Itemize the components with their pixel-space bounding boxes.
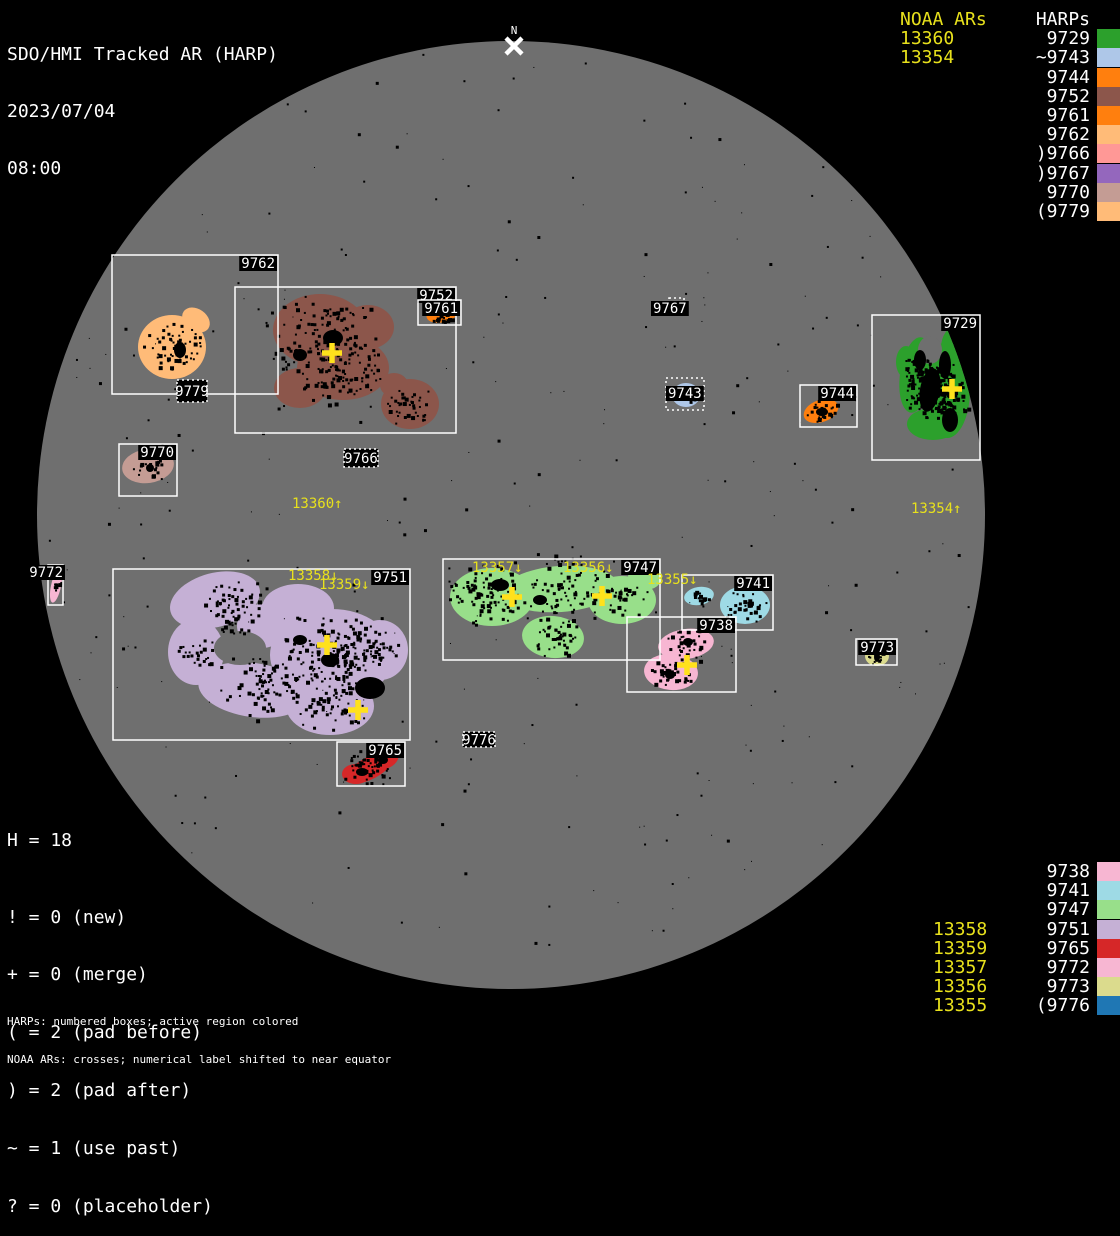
speckle (360, 388, 362, 390)
speckle (553, 592, 556, 595)
speckle (246, 606, 248, 608)
speckle (676, 671, 679, 674)
speckle (314, 167, 315, 168)
speckle (292, 317, 293, 318)
speckle (296, 617, 299, 620)
speckle (348, 354, 351, 357)
speckle (355, 619, 358, 622)
speckle (834, 412, 837, 415)
speckle (249, 714, 252, 717)
speckle (576, 775, 577, 776)
speckle (372, 349, 375, 352)
speckle (285, 366, 287, 368)
speckle (237, 608, 240, 611)
speckle (707, 272, 708, 273)
speckle (352, 643, 355, 646)
speckle (570, 604, 572, 606)
speckle (424, 529, 427, 532)
speckle (182, 646, 184, 648)
speckle (402, 721, 404, 723)
speckle (873, 385, 875, 387)
speckle (342, 319, 344, 321)
speckle (809, 736, 810, 737)
speckle (356, 390, 358, 392)
speckle (342, 370, 345, 373)
speckle (202, 214, 203, 215)
speckle (296, 694, 300, 698)
speckle (651, 669, 654, 672)
speckle (917, 377, 919, 379)
speckle (262, 673, 264, 675)
speckle (327, 344, 330, 347)
speckle (203, 648, 207, 652)
speckle (397, 415, 399, 417)
speckle (363, 763, 365, 765)
speckle (160, 362, 163, 365)
speckle (453, 590, 455, 592)
speckle (488, 582, 492, 586)
noaa-ar-disk-label: 13359↓ (319, 577, 370, 593)
speckle (427, 391, 429, 393)
speckle (362, 705, 364, 707)
speckle (195, 333, 197, 335)
speckle (531, 724, 533, 726)
speckle (721, 646, 722, 647)
speckle (228, 621, 231, 624)
speckle (407, 414, 411, 418)
speckle (694, 592, 698, 596)
speckle (359, 761, 363, 765)
speckle (336, 369, 338, 371)
speckle (592, 601, 596, 605)
speckle (235, 623, 237, 625)
speckle (916, 395, 918, 397)
flag-line: + = 0 (merge) (7, 965, 213, 984)
speckle (948, 409, 950, 411)
speckle (340, 695, 342, 697)
speckle (280, 348, 284, 352)
speckle (353, 314, 355, 316)
speckle (323, 618, 325, 620)
speckle (319, 697, 323, 701)
speckle (511, 580, 514, 583)
speckle (915, 368, 919, 372)
speckle (126, 437, 128, 439)
speckle (374, 765, 376, 767)
speckle (759, 615, 762, 618)
speckle (302, 373, 304, 375)
noaa-ar-number: 13357 (933, 957, 995, 978)
speckle (327, 313, 329, 315)
speckle (271, 312, 274, 315)
speckle (259, 677, 261, 679)
speckle (479, 615, 481, 617)
harp-number-label: 9770 (140, 445, 174, 461)
speckle (909, 359, 911, 361)
speckle (259, 594, 262, 597)
speckle (313, 710, 317, 714)
speckle (363, 699, 364, 700)
speckle (558, 631, 561, 634)
speckle (193, 358, 195, 360)
speckle (284, 618, 285, 619)
speckle (297, 350, 300, 353)
speckle (191, 329, 193, 331)
speckle (228, 604, 230, 606)
speckle (313, 668, 315, 670)
speckle (550, 392, 551, 393)
speckle (817, 411, 819, 413)
speckle (542, 589, 544, 591)
speckle (222, 594, 225, 597)
speckle (344, 343, 347, 346)
speckle (200, 345, 202, 347)
speckle (262, 682, 264, 684)
harp-number-label: 9762 (241, 256, 275, 272)
speckle (604, 409, 605, 410)
speckle (367, 759, 370, 762)
speckle (375, 379, 377, 381)
speckle (332, 664, 335, 667)
active-region-blob (173, 320, 195, 342)
speckle (529, 506, 530, 507)
speckle (230, 629, 234, 633)
speckle (361, 380, 363, 382)
speckle (149, 466, 153, 470)
harp-number: 9752 (1047, 86, 1090, 107)
speckle (244, 671, 248, 675)
speckle (363, 758, 366, 761)
speckle (466, 581, 469, 584)
speckle (353, 393, 355, 395)
speckle (378, 663, 381, 666)
speckle (448, 567, 450, 569)
speckle (464, 872, 467, 875)
speckle (368, 355, 371, 358)
noaa-ar-item: 13360 (900, 29, 987, 48)
speckle (956, 398, 960, 402)
speckle (425, 403, 428, 406)
speckle (574, 597, 576, 599)
speckle (301, 641, 303, 643)
speckle (354, 647, 356, 649)
speckle (514, 483, 516, 485)
speckle (191, 852, 192, 853)
speckle (678, 645, 681, 648)
speckle (326, 310, 329, 313)
speckle (219, 603, 221, 605)
speckle (285, 674, 289, 678)
speckle (326, 324, 329, 327)
speckle (743, 600, 747, 604)
speckle (124, 328, 127, 331)
speckle (927, 400, 930, 403)
speckle (337, 633, 339, 635)
speckle (334, 329, 336, 331)
speckle (940, 382, 942, 384)
speckle (814, 406, 817, 409)
speckle (403, 533, 406, 536)
speckle (232, 658, 235, 661)
speckle (173, 347, 176, 350)
speckle (953, 412, 956, 415)
harp-color-swatch (1097, 958, 1120, 977)
speckle (157, 338, 159, 340)
speckle (328, 698, 330, 700)
speckle (483, 586, 485, 588)
speckle (687, 630, 691, 634)
speckle (932, 380, 935, 383)
speckle (373, 373, 375, 375)
speckle (371, 766, 373, 768)
speckle (273, 358, 275, 360)
speckle (306, 378, 308, 380)
speckle (825, 611, 828, 614)
speckle (248, 621, 249, 622)
speckle (967, 408, 971, 412)
speckle (963, 409, 967, 413)
speckle (461, 600, 464, 603)
speckle (718, 138, 721, 141)
speckle (108, 523, 111, 526)
speckle (411, 416, 415, 420)
speckle (444, 321, 447, 324)
speckle (284, 299, 285, 300)
speckle (924, 402, 927, 405)
speckle (333, 694, 335, 696)
speckle (293, 649, 295, 651)
harp-number: ~9743 (1036, 47, 1090, 68)
speckle (774, 515, 775, 516)
speckle (665, 684, 667, 686)
speckle (369, 308, 373, 312)
harp-number-label: 9767 (653, 301, 687, 317)
speckle (313, 323, 316, 326)
noaa-ar-disk-label: 13357↓ (472, 560, 523, 576)
speckle (738, 607, 742, 611)
speckle (340, 644, 342, 646)
speckle (468, 185, 470, 187)
speckle (823, 411, 825, 413)
noaa-ar-number (933, 880, 995, 901)
harp-legend-row: 9762 (990, 125, 1120, 144)
speckle (534, 583, 537, 586)
speckle (451, 318, 455, 322)
speckle (293, 361, 295, 363)
speckle (304, 312, 306, 314)
speckle (911, 395, 913, 397)
speckle (564, 592, 566, 594)
speckle (558, 563, 562, 567)
speckle (281, 677, 283, 679)
speckle (317, 629, 321, 633)
speckle (574, 637, 576, 639)
speckle (921, 374, 923, 376)
speckle (344, 655, 347, 658)
harps-legend-top: HARPs 9729~97439744975297619762)9766)976… (990, 10, 1120, 221)
speckle (603, 423, 604, 424)
speckle (616, 459, 618, 461)
speckle (563, 391, 564, 392)
speckle (652, 930, 653, 931)
speckle (857, 324, 859, 326)
speckle (364, 344, 367, 347)
speckle (178, 434, 181, 437)
speckle (231, 612, 233, 614)
speckle (621, 614, 624, 617)
speckle (878, 660, 881, 663)
speckle (58, 583, 62, 587)
speckle (351, 325, 354, 328)
speckle (523, 601, 526, 604)
speckle (900, 682, 901, 683)
speckle (483, 601, 485, 603)
speckle (684, 681, 687, 684)
speckle (370, 406, 372, 408)
speckle (181, 822, 183, 824)
noaa-ar-number (933, 899, 995, 920)
speckle (929, 365, 931, 367)
speckle (363, 316, 366, 319)
speckle (606, 589, 609, 592)
speckle (288, 657, 292, 661)
speckle (557, 583, 561, 587)
speckle (539, 631, 541, 633)
speckle (192, 450, 194, 452)
speckle (850, 629, 852, 631)
harp-number-label: 9766 (344, 451, 378, 467)
speckle (370, 653, 372, 655)
speckle (330, 712, 332, 714)
speckle (329, 308, 331, 310)
speckle (669, 648, 672, 651)
speckle (304, 386, 307, 389)
speckle (546, 603, 548, 605)
speckle (870, 236, 871, 237)
speckle (387, 768, 389, 770)
speckle (290, 743, 291, 744)
speckle (343, 329, 345, 331)
speckle (157, 357, 159, 359)
speckle (628, 589, 632, 593)
speckle (563, 580, 565, 582)
speckle (335, 402, 339, 406)
speckle (579, 603, 581, 605)
speckle (734, 604, 737, 607)
speckle (271, 708, 275, 712)
speckle (283, 405, 285, 407)
harp-number-label: 9738 (699, 618, 733, 634)
speckle (268, 213, 270, 215)
speckle (621, 590, 622, 591)
speckle (220, 585, 223, 588)
speckle (334, 365, 337, 368)
speckle (557, 561, 559, 563)
speckle (912, 382, 915, 385)
speckle (566, 646, 569, 649)
speckle (660, 669, 664, 673)
speckle (450, 585, 453, 588)
speckle (422, 420, 424, 422)
speckle (190, 357, 192, 359)
harp-box-9779: 9779 (175, 380, 209, 402)
harp-legend-row: 9761 (990, 106, 1120, 125)
speckle (172, 323, 175, 326)
speckle (386, 647, 388, 649)
speckle (497, 249, 499, 251)
speckle (307, 323, 310, 326)
speckle (238, 581, 240, 583)
speckle (370, 782, 373, 785)
speckle (239, 631, 241, 633)
speckle (709, 780, 710, 781)
speckle (351, 687, 354, 690)
speckle (305, 296, 307, 298)
speckle (286, 369, 288, 371)
speckle (366, 782, 369, 785)
speckle (353, 755, 356, 758)
speckle (297, 657, 300, 660)
speckle (490, 591, 493, 594)
speckle (746, 608, 748, 610)
speckle (403, 402, 407, 406)
noaa-ar-number: 13359 (933, 938, 995, 959)
speckle (677, 632, 679, 634)
speckle (398, 390, 400, 392)
speckle (285, 638, 288, 641)
speckle (302, 675, 304, 677)
speckle (302, 645, 304, 647)
speckle (952, 469, 954, 471)
harp-number: 9762 (1047, 124, 1090, 145)
speckle (938, 367, 941, 370)
speckle (910, 403, 912, 405)
speckle (309, 666, 312, 669)
speckle (702, 187, 703, 188)
speckle (679, 654, 681, 656)
speckle (380, 643, 382, 645)
speckle (320, 370, 323, 373)
speckle (896, 572, 898, 574)
speckle (231, 595, 234, 598)
speckle (204, 797, 206, 799)
speckle (593, 890, 594, 891)
speckle (349, 347, 352, 350)
speckle (508, 220, 511, 223)
harp-number: 9729 (1047, 28, 1090, 49)
speckle (356, 610, 358, 612)
speckle (419, 397, 421, 399)
speckle (394, 400, 397, 403)
speckle (593, 617, 596, 620)
speckle (227, 607, 229, 609)
speckle (334, 689, 337, 692)
speckle (572, 638, 574, 640)
speckle (266, 710, 269, 713)
harp-color-swatch (1097, 881, 1120, 900)
speckle (538, 473, 541, 476)
speckle (222, 609, 226, 613)
speckle (693, 649, 695, 651)
speckle (324, 678, 326, 680)
speckle (250, 601, 253, 604)
speckle (475, 577, 477, 579)
speckle (222, 599, 225, 602)
speckle (175, 352, 177, 354)
speckle (344, 362, 347, 365)
harp-number-label: 9779 (175, 384, 209, 400)
speckle (370, 650, 372, 652)
